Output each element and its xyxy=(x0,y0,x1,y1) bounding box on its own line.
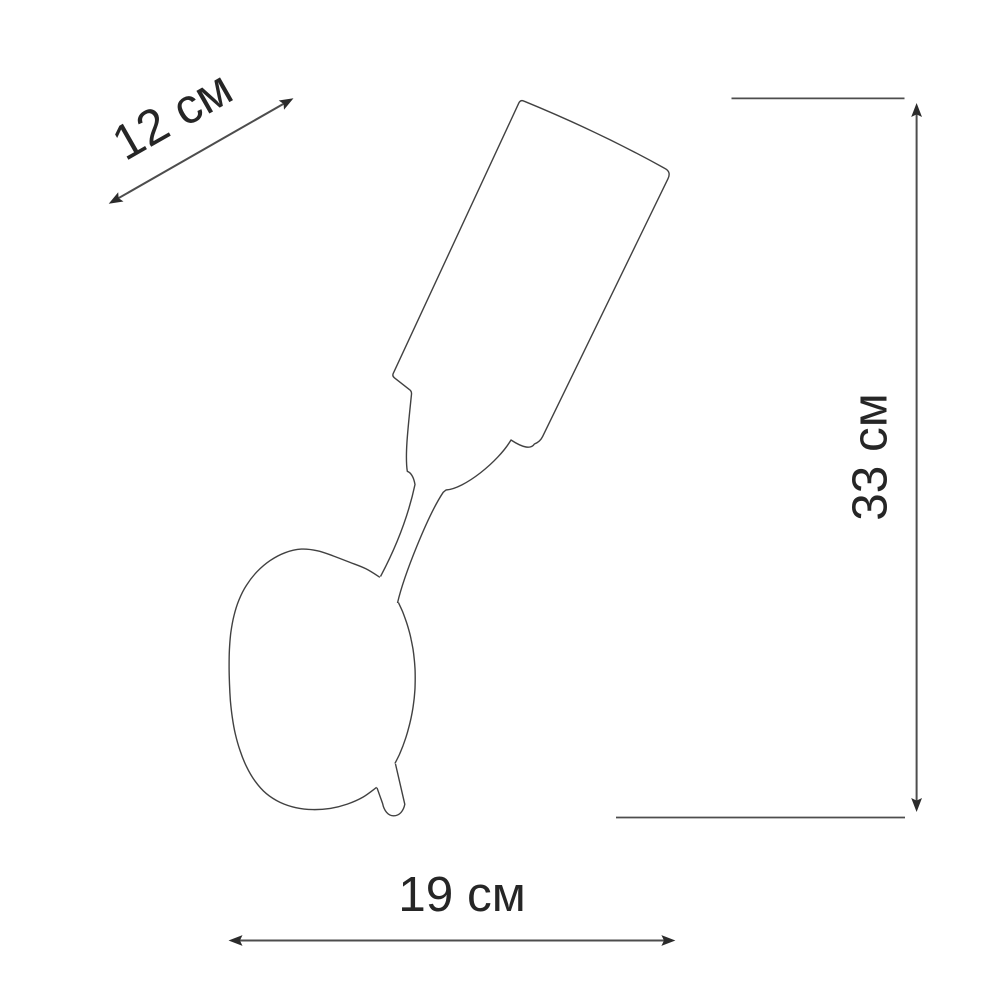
svg-text:33 см: 33 см xyxy=(843,393,898,521)
svg-text:12 см: 12 см xyxy=(103,60,241,171)
svg-text:19 см: 19 см xyxy=(398,867,526,922)
